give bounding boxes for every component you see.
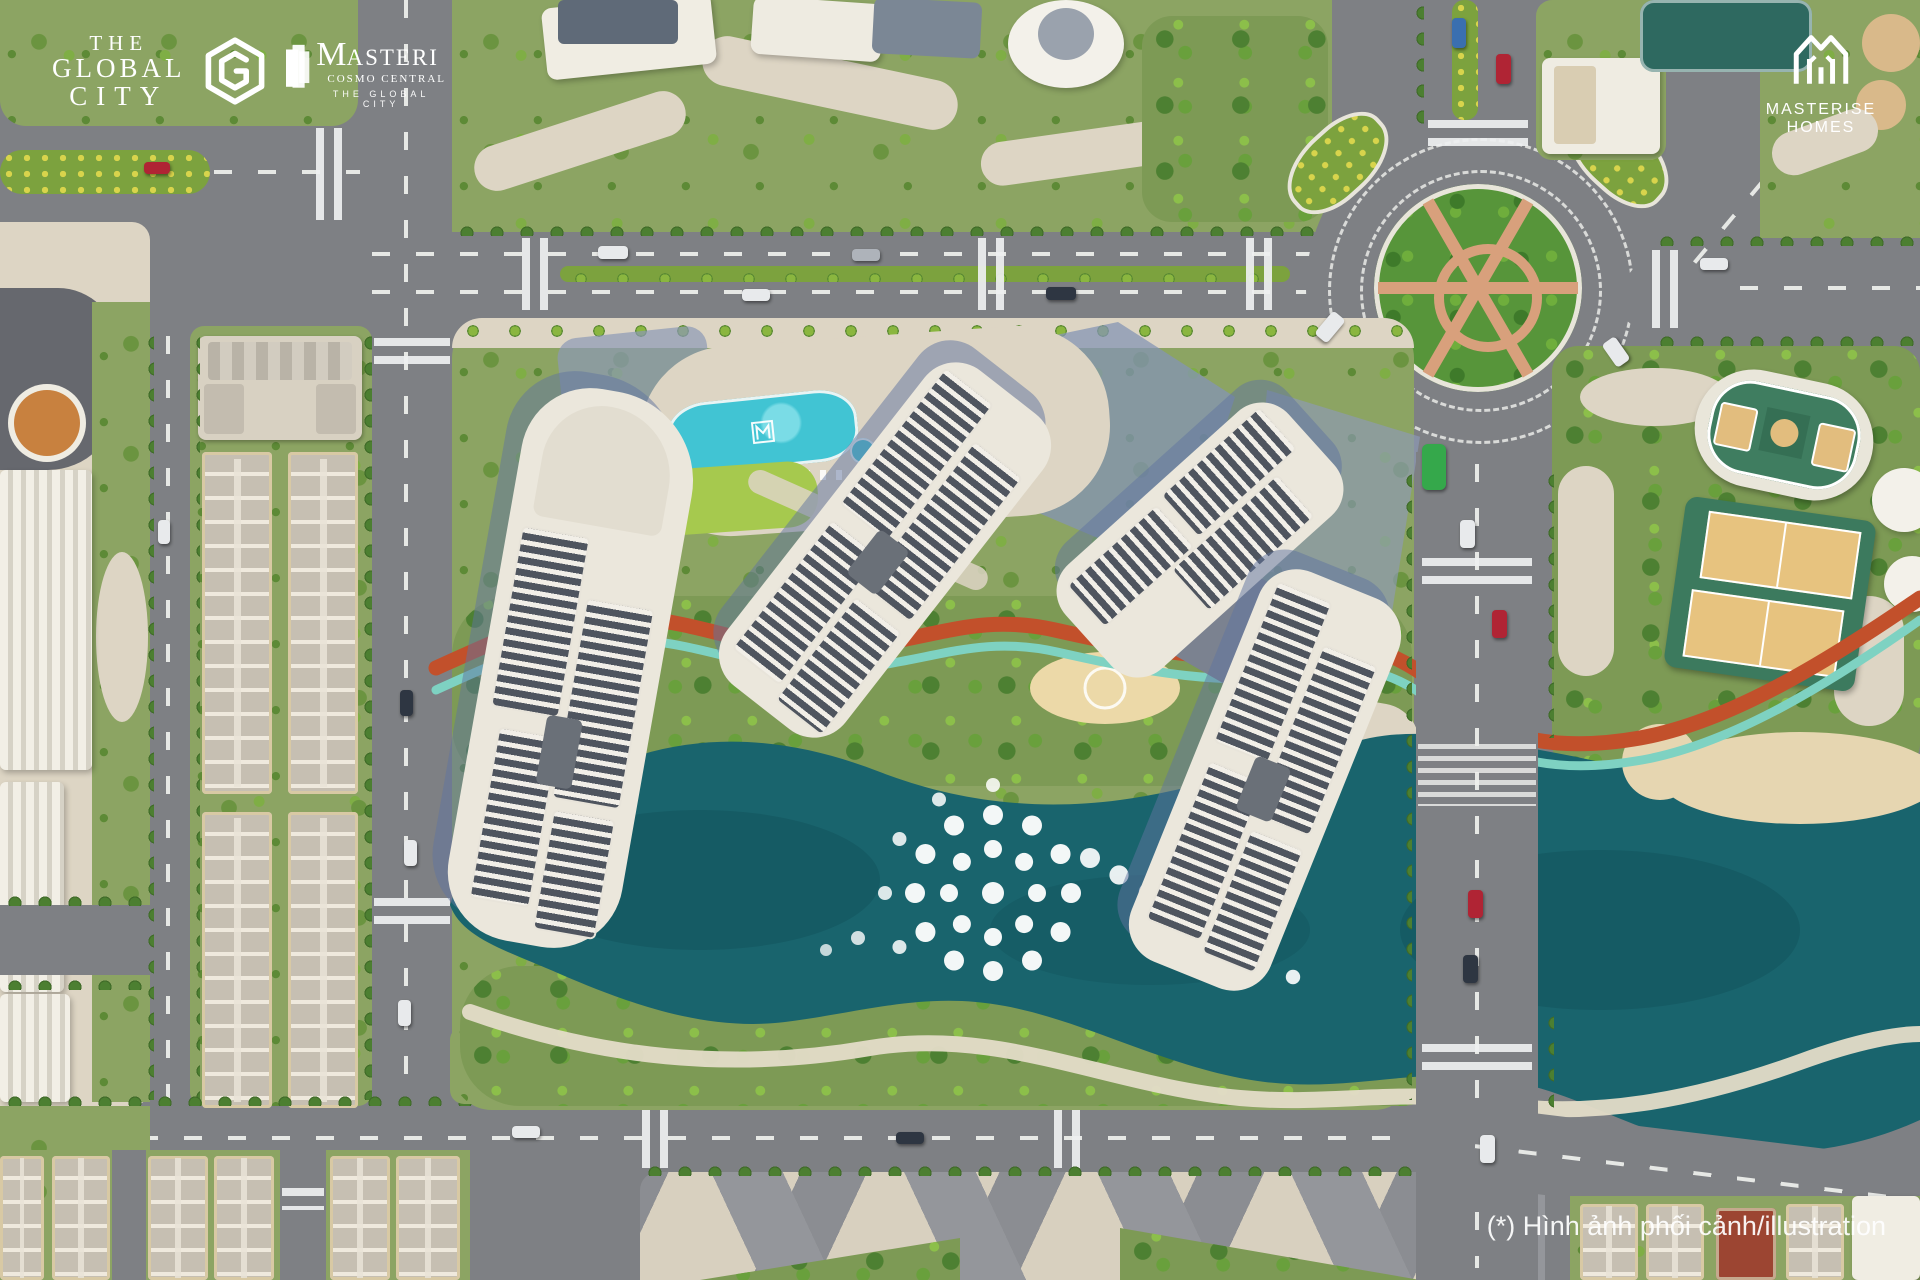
masteri-rest: ASTERI xyxy=(346,45,439,70)
car xyxy=(852,249,880,261)
treeline xyxy=(1540,468,1554,738)
car xyxy=(742,289,770,301)
aerial-masterplan: THE GLOBAL CITY MASTERI COSMO CENTRAL TH… xyxy=(0,0,1920,1280)
car xyxy=(598,246,628,259)
masteri-subtitle: COSMO CENTRAL xyxy=(316,73,446,85)
lake-and-paths-layer xyxy=(0,0,1920,1280)
logo-the-global-city: THE GLOBAL CITY xyxy=(52,26,298,116)
car xyxy=(1700,258,1728,270)
global-city-line3: CITY xyxy=(52,82,186,110)
masterise-monogram-icon xyxy=(1788,26,1854,92)
masteri-flag-icon xyxy=(286,38,310,102)
global-city-line1: THE xyxy=(52,32,186,54)
logo-masteri: MASTERI COSMO CENTRAL THE GLOBAL CITY xyxy=(286,38,446,114)
global-city-hexagon-icon xyxy=(200,36,270,106)
car xyxy=(1496,54,1511,84)
car xyxy=(1452,18,1466,48)
lake-bridge-deck xyxy=(1418,744,1536,806)
crosswalk-south-road xyxy=(1422,558,1532,586)
global-city-line2: GLOBAL xyxy=(52,54,186,82)
masteri-name: MASTERI xyxy=(316,38,446,72)
masteri-wordmark: MASTERI COSMO CENTRAL THE GLOBAL CITY xyxy=(316,38,446,114)
car xyxy=(896,1132,924,1144)
crosswalk-south-road xyxy=(1422,1044,1532,1072)
car xyxy=(144,162,170,174)
car xyxy=(1492,610,1507,638)
car xyxy=(1468,890,1483,918)
treeline xyxy=(1398,468,1412,1100)
logo-masterise-homes: MASTERISE HOMES xyxy=(1736,26,1906,126)
masterise-name: MASTERISE HOMES xyxy=(1736,101,1906,137)
car xyxy=(512,1126,540,1138)
car xyxy=(1460,520,1475,548)
lane-dash xyxy=(1475,1144,1912,1202)
masteri-initial: M xyxy=(316,36,346,73)
car xyxy=(1480,1135,1495,1163)
car xyxy=(400,690,413,716)
masteri-tagline: THE GLOBAL CITY xyxy=(316,89,446,109)
global-city-wordmark: THE GLOBAL CITY xyxy=(52,32,186,111)
bus xyxy=(1422,444,1446,490)
car xyxy=(404,840,417,866)
car xyxy=(1046,287,1076,300)
car xyxy=(158,520,170,544)
car xyxy=(398,1000,411,1026)
roof-panel xyxy=(534,811,614,938)
roof-deck xyxy=(532,397,681,538)
car xyxy=(1463,955,1478,983)
illustration-disclaimer: (*) Hình ảnh phối cảnh/illustration xyxy=(1487,1211,1886,1242)
